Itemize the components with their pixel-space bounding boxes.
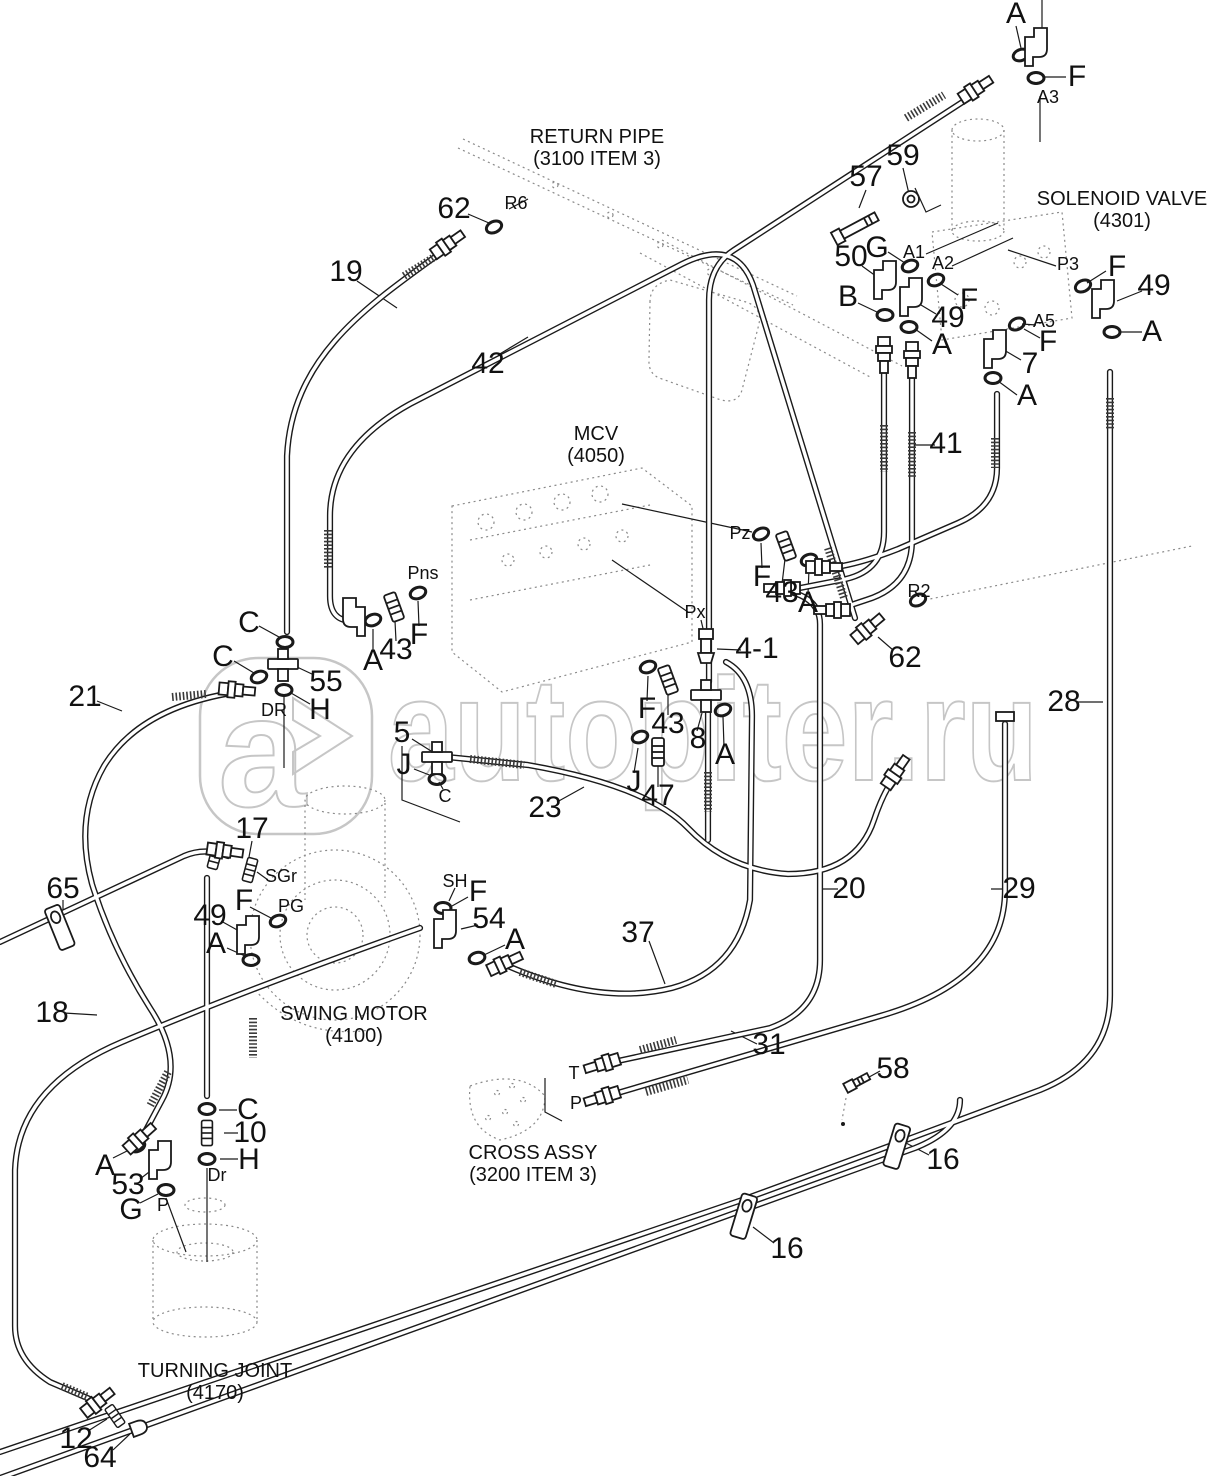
callout-label: 4-1 [735, 634, 778, 664]
parts-diagram: a autopiter.ru [0, 0, 1208, 1476]
component-title-solenoid-valve: SOLENOID VALVE(4301) [1037, 188, 1207, 232]
callout-label: 21 [68, 682, 101, 712]
callout-label: 5 [394, 718, 411, 748]
component-title-cross-assy: CROSS ASSY(3200 ITEM 3) [469, 1142, 598, 1186]
port-label: P [157, 1196, 169, 1214]
callout-label: 64 [83, 1443, 116, 1473]
callout-label: 42 [471, 349, 504, 379]
callout-label: A [206, 929, 226, 959]
callout-label: 29 [1002, 874, 1035, 904]
callout-label: 54 [472, 904, 505, 934]
callout-label: 62 [437, 194, 470, 224]
callout-label: 17 [235, 814, 268, 844]
port-label: R2 [907, 582, 930, 600]
callout-label: 23 [528, 793, 561, 823]
port-label: Dr [208, 1166, 227, 1184]
port-label: A3 [1037, 88, 1059, 106]
callout-label: A [932, 330, 952, 360]
port-label: P [570, 1094, 582, 1112]
callout-layer: RETURN PIPE(3100 ITEM 3) SOLENOID VALVE(… [0, 0, 1208, 1476]
callout-label: 62 [888, 643, 921, 673]
callout-label: 19 [329, 257, 362, 287]
callout-label: A [1142, 317, 1162, 347]
component-title-swing-motor: SWING MOTOR(4100) [280, 1003, 427, 1047]
callout-label: 43 [379, 635, 412, 665]
callout-label: C [238, 608, 260, 638]
callout-label: J [627, 767, 642, 797]
callout-label: A [363, 646, 383, 676]
callout-label: 7 [1022, 349, 1039, 379]
port-label: Px [684, 603, 705, 621]
port-label: DR [261, 701, 287, 719]
callout-label: H [238, 1145, 260, 1175]
callout-label: C [212, 642, 234, 672]
callout-label: 43 [651, 709, 684, 739]
callout-label: 49 [1137, 271, 1170, 301]
callout-label: 65 [46, 874, 79, 904]
port-label: A2 [932, 254, 954, 272]
component-title-mcv: MCV(4050) [567, 423, 625, 467]
component-title-return-pipe: RETURN PIPE(3100 ITEM 3) [530, 126, 664, 170]
callout-label: A [505, 925, 525, 955]
callout-label: 47 [641, 781, 674, 811]
port-label: R6 [504, 194, 527, 212]
callout-label: A [715, 740, 735, 770]
callout-label: F [235, 886, 253, 916]
callout-label: A [1006, 0, 1026, 29]
callout-label: 57 [849, 162, 882, 192]
callout-label: 28 [1047, 687, 1080, 717]
port-label: SGr [265, 867, 297, 885]
callout-label: 18 [35, 998, 68, 1028]
port-label: P3 [1057, 255, 1079, 273]
callout-label: 37 [621, 918, 654, 948]
port-label: C [439, 787, 452, 805]
port-label: T [569, 1064, 580, 1082]
callout-label: 58 [876, 1054, 909, 1084]
port-label: SH [442, 872, 467, 890]
callout-label: 20 [832, 874, 865, 904]
callout-label: 43 [765, 578, 798, 608]
callout-label: H [309, 695, 331, 725]
callout-label: 31 [752, 1030, 785, 1060]
callout-label: J [397, 750, 412, 780]
callout-label: G [119, 1195, 142, 1225]
callout-label: 8 [690, 724, 707, 754]
port-label: A1 [903, 243, 925, 261]
callout-label: 41 [929, 429, 962, 459]
port-label: Pz [729, 524, 750, 542]
callout-label: 16 [770, 1234, 803, 1264]
callout-label: 59 [886, 141, 919, 171]
port-label: Pns [407, 564, 438, 582]
callout-label: G [865, 233, 888, 263]
callout-label: 16 [926, 1145, 959, 1175]
callout-label: B [838, 282, 858, 312]
callout-label: A [1017, 381, 1037, 411]
callout-label: F [1108, 252, 1126, 282]
callout-label: F [1068, 62, 1086, 92]
component-title-turning-joint: TURNING JOINT(4170) [138, 1360, 292, 1404]
callout-label: 50 [834, 242, 867, 272]
callout-label: F [1039, 327, 1057, 357]
callout-label: A [798, 588, 818, 618]
port-label: PG [278, 897, 304, 915]
